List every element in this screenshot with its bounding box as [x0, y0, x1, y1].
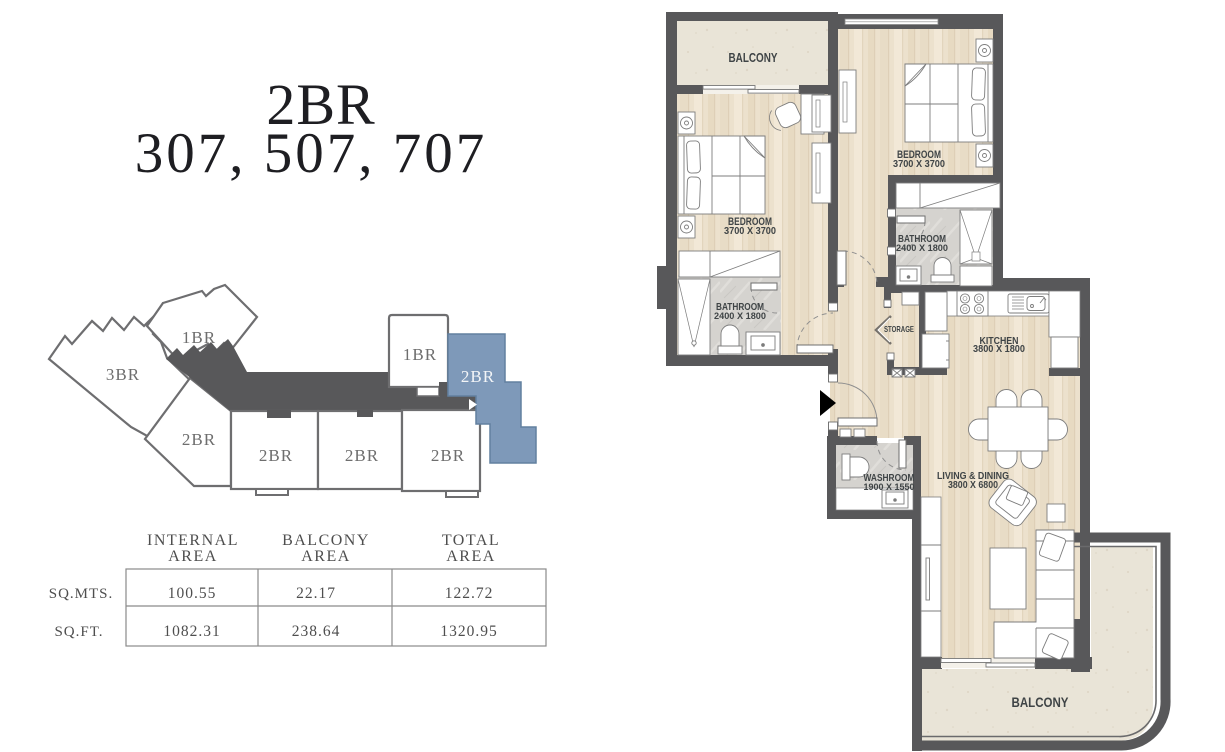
- svg-text:3BR: 3BR: [106, 365, 140, 384]
- svg-text:3700 X 3700: 3700 X 3700: [724, 226, 776, 237]
- svg-text:SQ.MTS.: SQ.MTS.: [49, 586, 114, 602]
- svg-text:BALCONY: BALCONY: [1012, 694, 1070, 710]
- svg-text:2400 X 1800: 2400 X 1800: [896, 243, 948, 254]
- svg-text:22.17: 22.17: [296, 585, 336, 602]
- svg-text:238.64: 238.64: [292, 623, 341, 640]
- svg-text:1BR: 1BR: [182, 328, 216, 347]
- svg-text:1082.31: 1082.31: [163, 623, 220, 640]
- svg-text:122.72: 122.72: [445, 585, 494, 602]
- svg-text:2BR: 2BR: [461, 367, 495, 386]
- svg-text:AREA: AREA: [446, 548, 496, 565]
- svg-text:3800 X 6800: 3800 X 6800: [948, 480, 998, 491]
- svg-text:INTERNAL: INTERNAL: [147, 532, 239, 549]
- svg-text:STORAGE: STORAGE: [884, 324, 914, 334]
- svg-text:AREA: AREA: [168, 548, 218, 565]
- svg-text:SQ.FT.: SQ.FT.: [54, 624, 103, 640]
- svg-text:100.55: 100.55: [168, 585, 217, 602]
- svg-text:BALCONY: BALCONY: [282, 532, 370, 549]
- svg-text:2BR: 2BR: [182, 430, 216, 449]
- svg-text:1BR: 1BR: [403, 345, 437, 364]
- svg-text:2BR: 2BR: [345, 446, 379, 465]
- svg-text:3700 X 3700: 3700 X 3700: [893, 159, 945, 170]
- svg-text:BALCONY: BALCONY: [729, 50, 778, 65]
- svg-text:307, 507, 707: 307, 507, 707: [135, 122, 488, 185]
- svg-text:2400 X 1800: 2400 X 1800: [714, 311, 766, 322]
- svg-text:TOTAL: TOTAL: [442, 532, 500, 549]
- svg-text:1900 X 1550: 1900 X 1550: [864, 482, 915, 493]
- svg-text:2BR: 2BR: [431, 446, 465, 465]
- svg-text:2BR: 2BR: [259, 446, 293, 465]
- svg-text:AREA: AREA: [301, 548, 351, 565]
- svg-text:1320.95: 1320.95: [440, 623, 497, 640]
- svg-text:3800 X 1800: 3800 X 1800: [973, 344, 1025, 355]
